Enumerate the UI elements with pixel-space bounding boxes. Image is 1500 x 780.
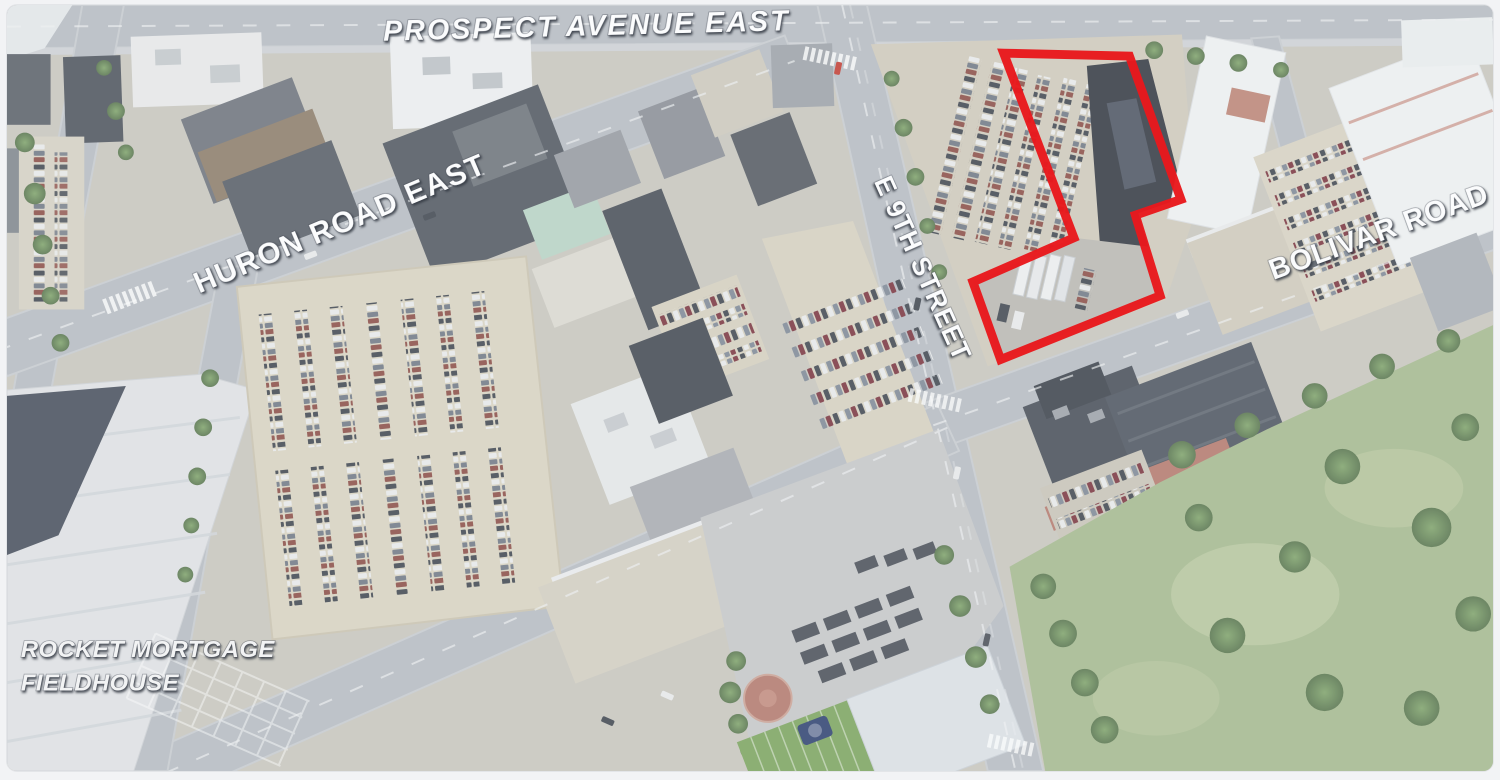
aerial-map: PROSPECT AVENUE EAST HURON ROAD EAST E 9… [7, 5, 1493, 771]
aerial-map-canvas: PROSPECT AVENUE EAST HURON ROAD EAST E 9… [7, 5, 1493, 771]
label-rocket-mortgage-fieldhouse-line2: FIELDHOUSE [21, 671, 180, 697]
label-rocket-mortgage-fieldhouse-line1: ROCKET MORTGAGE [21, 637, 276, 663]
aerial-map-card: PROSPECT AVENUE EAST HURON ROAD EAST E 9… [0, 0, 1500, 780]
